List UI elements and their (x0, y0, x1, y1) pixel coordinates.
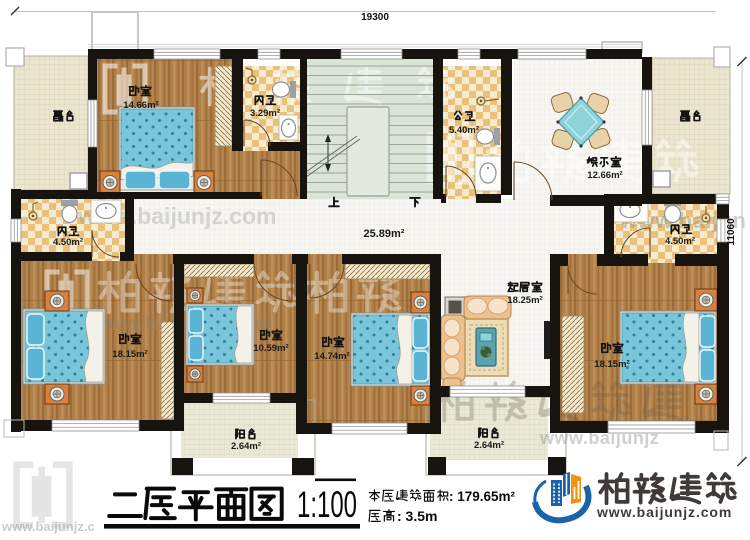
svg-text:4.50m²: 4.50m² (665, 236, 695, 247)
svg-text:3.29m²: 3.29m² (250, 108, 280, 119)
svg-text:4.50m²: 4.50m² (53, 237, 83, 248)
svg-text:11060: 11060 (726, 218, 737, 246)
svg-text:14.66m²: 14.66m² (123, 100, 158, 111)
svg-text:10.59m²: 10.59m² (253, 343, 288, 354)
svg-text:12.66m²: 12.66m² (587, 170, 622, 181)
svg-text:1:100: 1:100 (297, 484, 357, 525)
svg-text:www.baijunjz.com: www.baijunjz.com (596, 504, 732, 520)
svg-text:25.89m²: 25.89m² (364, 228, 405, 240)
svg-text:: 3.5m: : 3.5m (397, 508, 437, 524)
svg-text:: 179.65m²: : 179.65m² (449, 489, 516, 504)
svg-text:14.74m²: 14.74m² (314, 351, 349, 362)
svg-text:19300: 19300 (361, 12, 389, 23)
svg-text:18.15m²: 18.15m² (112, 349, 147, 360)
svg-text:www.baijunjz.c: www.baijunjz.c (1, 519, 95, 534)
svg-text:18.25m²: 18.25m² (507, 295, 542, 306)
svg-text:18.15m²: 18.15m² (594, 359, 629, 370)
svg-text:2.64m²: 2.64m² (231, 441, 261, 452)
svg-text:5.40m²: 5.40m² (449, 125, 479, 136)
svg-text:2.64m²: 2.64m² (474, 440, 504, 451)
